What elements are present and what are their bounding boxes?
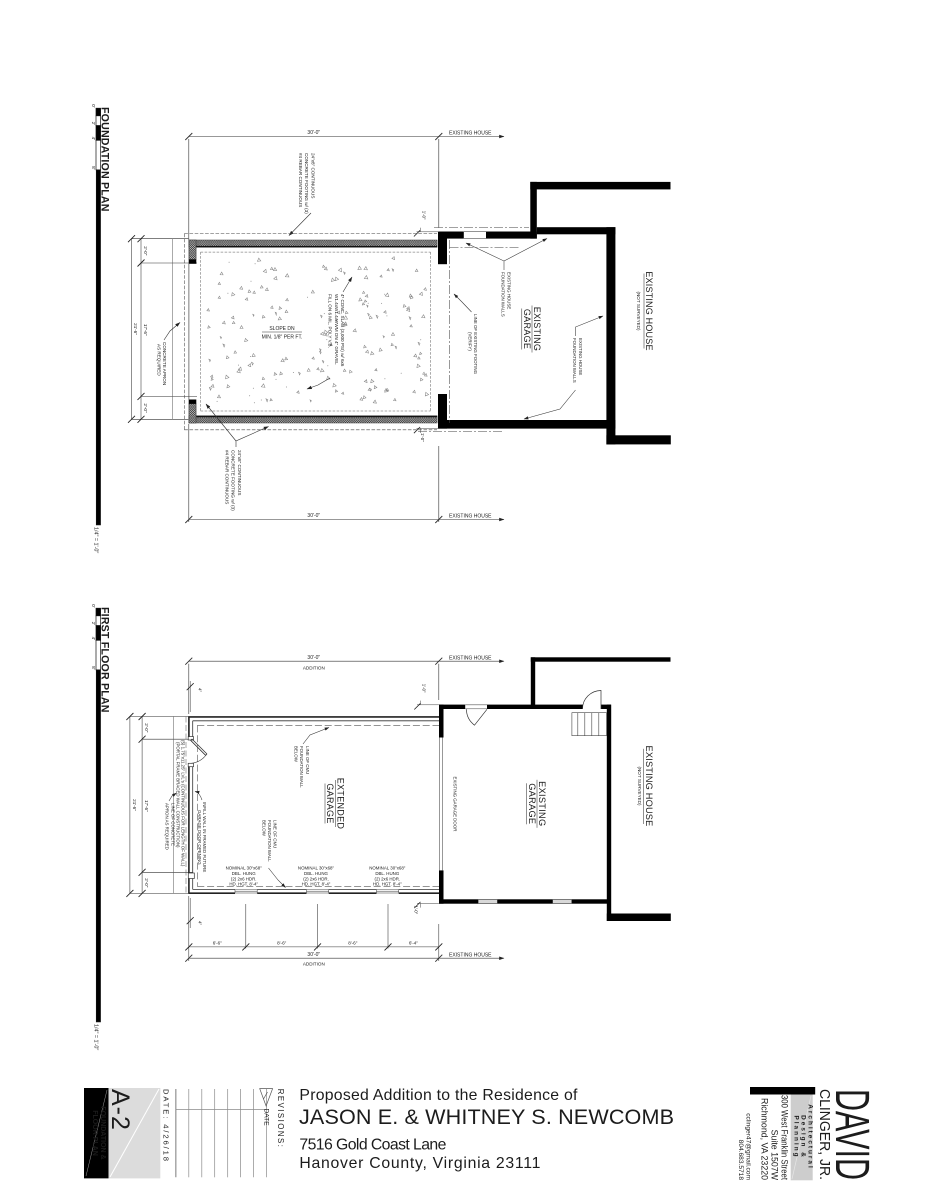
svg-text:BELOW: BELOW bbox=[261, 820, 266, 837]
svg-text:ADDITION: ADDITION bbox=[303, 665, 325, 670]
svg-text:1'-0": 1'-0" bbox=[420, 433, 425, 442]
svg-text:FOUNDATION WALLS: FOUNDATION WALLS bbox=[572, 338, 577, 383]
svg-text:EXISTING HOUSE: EXISTING HOUSE bbox=[506, 272, 511, 309]
svg-text:HD. HGT. 8'-4": HD. HGT. 8'-4" bbox=[229, 882, 258, 887]
svg-text:LINE OF CONCRETE: LINE OF CONCRETE bbox=[170, 803, 175, 846]
svg-text:2': 2' bbox=[91, 122, 96, 126]
svg-text:FOUNDATION &: FOUNDATION & bbox=[99, 1106, 106, 1159]
svg-text:6'-6": 6'-6" bbox=[213, 940, 223, 945]
svg-text:EXISTING HOUSE: EXISTING HOUSE bbox=[449, 952, 492, 958]
svg-text:24"x8" CONTINUOUS: 24"x8" CONTINUOUS bbox=[311, 153, 316, 198]
svg-text:FOUNDATION WALL: FOUNDATION WALL bbox=[267, 820, 272, 862]
svg-text:REVISIONS:: REVISIONS: bbox=[276, 1089, 285, 1147]
svg-text:#4 REBAR CONTINUOUS: #4 REBAR CONTINUOUS bbox=[298, 153, 303, 207]
svg-text:1'-0": 1'-0" bbox=[422, 684, 427, 693]
svg-text:CLINGER, JR.: CLINGER, JR. bbox=[816, 1089, 832, 1180]
svg-text:FOUNDATION WALLS: FOUNDATION WALLS bbox=[501, 272, 506, 317]
svg-text:EXISTING HOUSE: EXISTING HOUSE bbox=[449, 131, 492, 137]
svg-text:EXISTING HOUSE: EXISTING HOUSE bbox=[644, 746, 654, 827]
svg-text:GARAGE: GARAGE bbox=[325, 783, 335, 823]
svg-text:FILL ON 6 MIL. POLY V.B.: FILL ON 6 MIL. POLY V.B. bbox=[328, 294, 333, 348]
svg-text:4': 4' bbox=[91, 137, 96, 141]
svg-text:EXISTING HOUSE: EXISTING HOUSE bbox=[578, 338, 583, 375]
svg-text:EXISTING: EXISTING bbox=[537, 781, 547, 826]
svg-text:8'-6": 8'-6" bbox=[348, 940, 358, 945]
svg-text:30'-0": 30'-0" bbox=[307, 130, 320, 136]
svg-text:APRON AS REQUIRED: APRON AS REQUIRED bbox=[165, 803, 170, 850]
svg-text:EXISTING: EXISTING bbox=[532, 307, 542, 351]
svg-text:NOMINAL 30"x68": NOMINAL 30"x68" bbox=[369, 865, 406, 870]
svg-text:JASON E. & WHITNEY S. NEWCOMB: JASON E. & WHITNEY S. NEWCOMB bbox=[299, 1104, 674, 1129]
svg-text:LINE OF CMU: LINE OF CMU bbox=[273, 820, 278, 848]
svg-text:EXTENDED: EXTENDED bbox=[336, 778, 346, 830]
svg-text:2'-0": 2'-0" bbox=[144, 723, 149, 733]
svg-text:GARAGE: GARAGE bbox=[527, 783, 537, 824]
svg-text:CONCRETE FOOTING w/ (3): CONCRETE FOOTING w/ (3) bbox=[231, 450, 236, 511]
svg-text:4": 4" bbox=[198, 688, 203, 692]
svg-text:CONCRETE FOOTING w/ (3): CONCRETE FOOTING w/ (3) bbox=[304, 153, 309, 214]
svg-text:(NOT SURVEYED): (NOT SURVEYED) bbox=[636, 291, 641, 331]
svg-text:0': 0' bbox=[91, 604, 96, 608]
svg-text:FLOOR PLAN: FLOOR PLAN bbox=[91, 1110, 98, 1156]
svg-text:W1.4xW1.4 WWM ON 4" GRAVEL: W1.4xW1.4 WWM ON 4" GRAVEL bbox=[334, 294, 339, 365]
svg-text:GARAGE DOOR OPENING: GARAGE DOOR OPENING bbox=[197, 810, 202, 865]
svg-text:cclinger47@gmail.com: cclinger47@gmail.com bbox=[745, 1113, 752, 1180]
svg-text:2'-0": 2'-0" bbox=[143, 403, 148, 413]
svg-text:1/4" = 1'-0": 1/4" = 1'-0" bbox=[93, 1024, 99, 1050]
svg-text:DBL. HUNG: DBL. HUNG bbox=[375, 871, 399, 876]
svg-text:GARAGE: GARAGE bbox=[522, 309, 532, 349]
svg-text:EXISTING HOUSE: EXISTING HOUSE bbox=[449, 514, 492, 520]
svg-text:4" CONC. SLAB (3,000 PSI) w/ 6: 4" CONC. SLAB (3,000 PSI) w/ 6x6 bbox=[340, 294, 345, 367]
svg-text:Planning: Planning bbox=[792, 1116, 799, 1159]
svg-text:21'-6": 21'-6" bbox=[132, 799, 137, 811]
svg-text:DATE: 4/26/18: DATE: 4/26/18 bbox=[162, 1089, 171, 1161]
svg-text:17'-6": 17'-6" bbox=[144, 800, 149, 812]
svg-text:EXISTING HOUSE: EXISTING HOUSE bbox=[644, 271, 654, 350]
svg-text:30'-0": 30'-0" bbox=[307, 655, 320, 661]
svg-text:8': 8' bbox=[91, 166, 96, 170]
svg-text:4': 4' bbox=[91, 637, 96, 641]
svg-text:17'-6": 17'-6" bbox=[143, 324, 148, 336]
svg-text:Suite 1507W: Suite 1507W bbox=[770, 1130, 780, 1181]
svg-text:(NOT SURVEYED): (NOT SURVEYED) bbox=[637, 766, 642, 806]
svg-text:Hanover County, Virginia 2311: Hanover County, Virginia 23111 bbox=[299, 1155, 540, 1172]
svg-text:LINE OF CMU: LINE OF CMU bbox=[305, 746, 310, 774]
svg-text:1'-0": 1'-0" bbox=[414, 906, 419, 915]
svg-text:NOMINAL 30"x68": NOMINAL 30"x68" bbox=[226, 865, 263, 870]
svg-text:FOUNDATION WALL: FOUNDATION WALL bbox=[299, 746, 304, 788]
svg-text:30'-0": 30'-0" bbox=[307, 513, 320, 519]
svg-text:2'-0": 2'-0" bbox=[144, 878, 149, 888]
svg-text:24"x8" CONTINUOUS: 24"x8" CONTINUOUS bbox=[237, 450, 242, 495]
svg-text:(VERIFY): (VERIFY) bbox=[467, 332, 472, 351]
svg-text:Design &: Design & bbox=[799, 1115, 806, 1159]
svg-text:0': 0' bbox=[91, 104, 96, 108]
svg-text:2'-0": 2'-0" bbox=[143, 246, 148, 256]
svg-text:HD. HGT. 8'-4": HD. HGT. 8'-4" bbox=[302, 882, 331, 887]
svg-text:MIN. 1/8" PER FT.: MIN. 1/8" PER FT. bbox=[262, 335, 303, 341]
svg-text:6'-4": 6'-4" bbox=[409, 940, 419, 945]
svg-text:8'-6": 8'-6" bbox=[277, 940, 287, 945]
svg-text:DBL. HUNG: DBL. HUNG bbox=[304, 871, 328, 876]
svg-text:(PORTAL FRAME BRACED WALL CONS: (PORTAL FRAME BRACED WALL CONSTRUCTION) bbox=[176, 742, 181, 848]
svg-text:8': 8' bbox=[91, 666, 96, 670]
svg-text:2': 2' bbox=[91, 622, 96, 626]
svg-text:Proposed Addition to the Resid: Proposed Addition to the Residence of bbox=[299, 1087, 578, 1104]
svg-text:DATE: DATE bbox=[263, 1109, 270, 1127]
svg-text:AS REQUIRED: AS REQUIRED bbox=[157, 344, 162, 376]
svg-text:Richmond, VA 23220: Richmond, VA 23220 bbox=[760, 1098, 770, 1180]
svg-text:EXISTING HOUSE: EXISTING HOUSE bbox=[449, 655, 492, 661]
svg-text:#4 REBAR CONTINUOUS: #4 REBAR CONTINUOUS bbox=[224, 450, 229, 504]
svg-text:BELOW: BELOW bbox=[294, 746, 299, 763]
svg-text:A-2: A-2 bbox=[106, 1089, 134, 1131]
svg-text:SLOPE DN: SLOPE DN bbox=[269, 326, 295, 332]
svg-text:4": 4" bbox=[198, 921, 203, 925]
svg-text:NOMINAL 30"x68": NOMINAL 30"x68" bbox=[298, 865, 335, 870]
svg-text:30'-0": 30'-0" bbox=[307, 952, 320, 958]
svg-text:1/4" = 1'-0": 1/4" = 1'-0" bbox=[93, 527, 99, 553]
svg-text:300 West Franklin Street: 300 West Franklin Street bbox=[780, 1095, 790, 1180]
svg-text:804.683.5718: 804.683.5718 bbox=[737, 1140, 744, 1181]
svg-text:7516 Gold Coast Lane: 7516 Gold Coast Lane bbox=[299, 1137, 446, 1154]
svg-text:Architectural: Architectural bbox=[806, 1104, 813, 1169]
svg-text:EXISTING GARAGE DOOR: EXISTING GARAGE DOOR bbox=[452, 777, 457, 832]
svg-text:HD. HGT. 8'-4": HD. HGT. 8'-4" bbox=[373, 882, 402, 887]
svg-text:LINE OF EXISTING FOOTING: LINE OF EXISTING FOOTING bbox=[473, 314, 478, 375]
svg-text:ADDITION: ADDITION bbox=[303, 961, 325, 966]
svg-text:21'-6": 21'-6" bbox=[133, 323, 138, 335]
svg-text:CONCRETE APRON: CONCRETE APRON bbox=[162, 342, 167, 385]
svg-text:1'-0": 1'-0" bbox=[422, 211, 427, 220]
svg-text:DBL. HUNG: DBL. HUNG bbox=[232, 871, 256, 876]
